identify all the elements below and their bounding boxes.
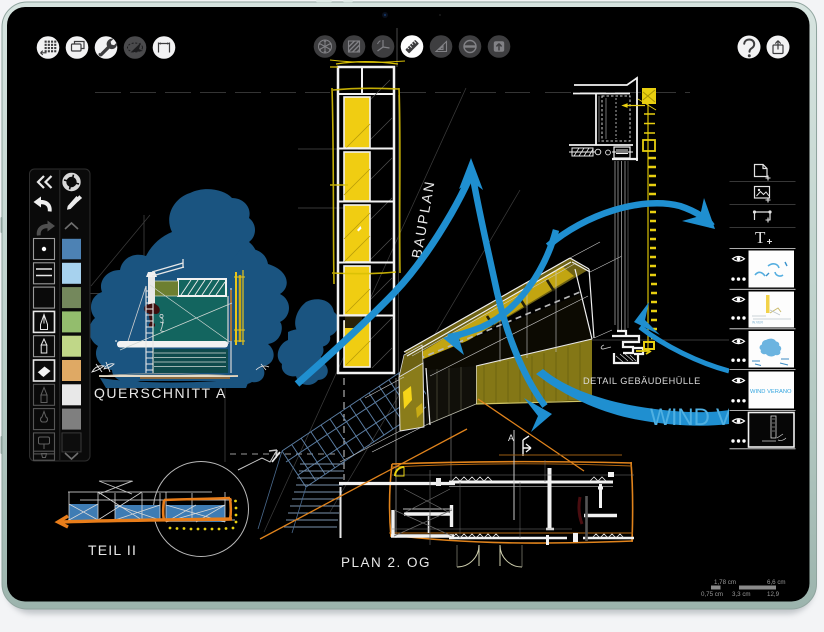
svg-text:TEIL II: TEIL II [88, 542, 137, 558]
svg-text:A: A [508, 433, 514, 443]
svg-text:W.VER: W.VER [752, 321, 763, 325]
svg-text:T: T [755, 228, 766, 247]
svg-text:WIND VERANO: WIND VERANO [750, 389, 792, 395]
svg-text:DETAIL GEBÄUDEHÜLLE: DETAIL GEBÄUDEHÜLLE [583, 376, 701, 386]
svg-text:QUERSCHNITT A: QUERSCHNITT A [94, 385, 227, 401]
svg-text:3,3 cm: 3,3 cm [732, 591, 751, 598]
svg-text:6,6 cm: 6,6 cm [767, 579, 786, 586]
svg-text:12,9: 12,9 [767, 591, 780, 598]
svg-text:0,75 cm: 0,75 cm [701, 591, 723, 598]
svg-text:1,78 cm: 1,78 cm [714, 579, 736, 586]
svg-text:PLAN 2. OG: PLAN 2. OG [341, 555, 431, 570]
